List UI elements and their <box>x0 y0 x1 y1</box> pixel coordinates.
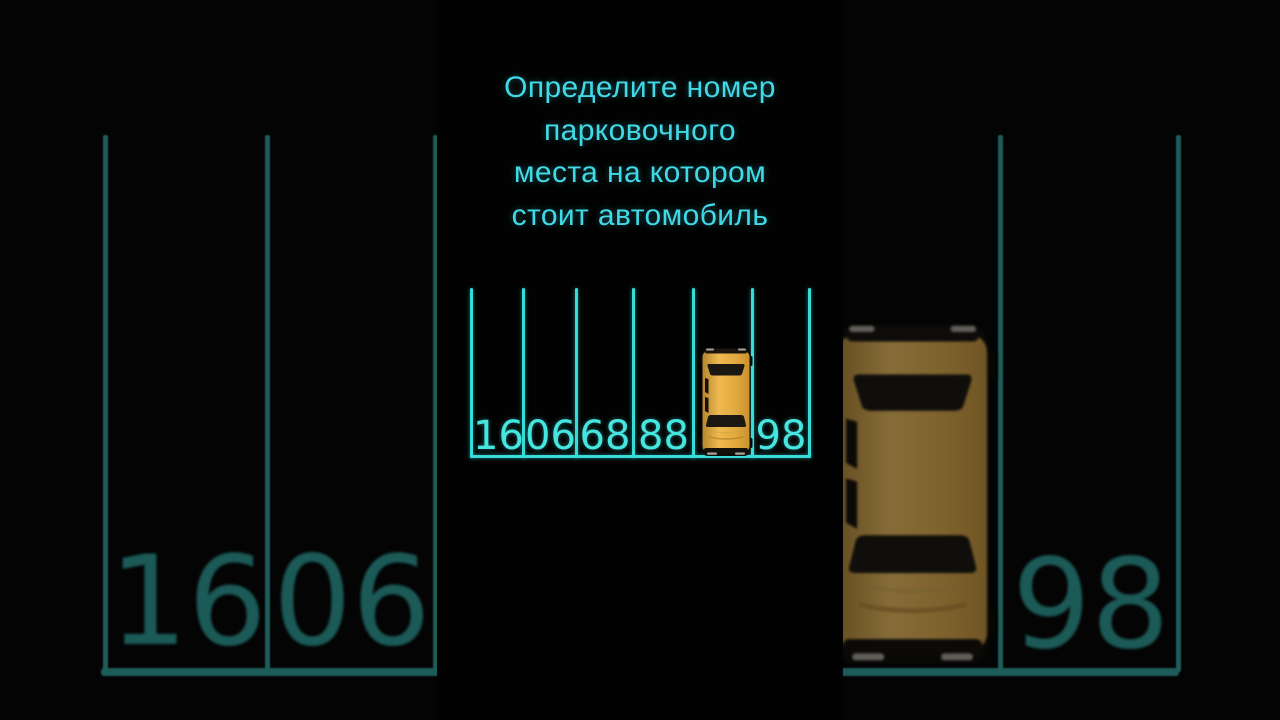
parking-divider-line <box>808 288 811 458</box>
background-parking-line <box>1176 135 1181 672</box>
background-spot-number: 98 <box>1012 550 1162 660</box>
video-panel: Определите номер парковочного места на к… <box>437 0 843 720</box>
parking-diagram: 16 06 68 88 98 <box>437 0 843 720</box>
background-spot-number: 06 <box>273 547 423 657</box>
background-parking-line <box>998 135 1003 672</box>
car-icon <box>827 321 998 668</box>
parking-spot-number: 16 <box>473 417 522 455</box>
parking-spot-number: 68 <box>578 417 632 455</box>
background-spot-number: 16 <box>109 547 259 657</box>
parked-car <box>699 347 753 457</box>
parking-spot-number: 88 <box>635 417 692 455</box>
background-parking-line <box>103 135 108 672</box>
parking-divider-line <box>692 288 695 458</box>
parking-spot-number: 06 <box>525 417 575 455</box>
video-frame: 16 06 98 Определите номер парковочного м… <box>0 0 1280 720</box>
background-car-image <box>827 321 998 668</box>
yellow-car-icon <box>699 347 753 457</box>
parking-spot-number: 98 <box>754 417 808 455</box>
